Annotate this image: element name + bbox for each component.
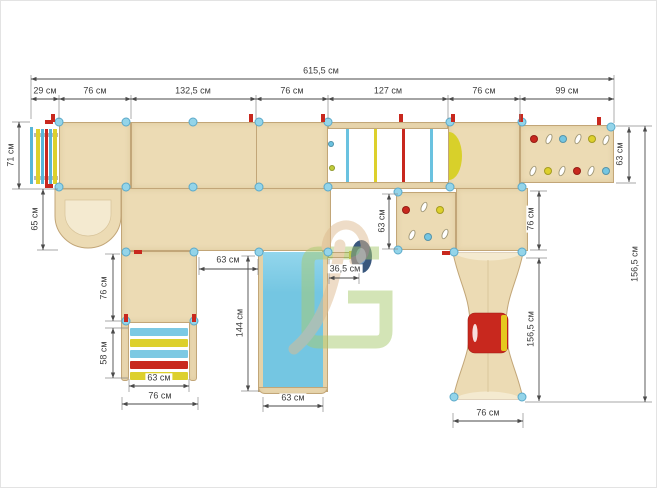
clamp-mark	[399, 114, 403, 122]
dim-right-76: 76 см	[526, 205, 535, 232]
connector-dot	[122, 248, 131, 257]
dim-slide-144: 144 см	[235, 307, 244, 339]
peg-red	[530, 135, 538, 143]
dim-stairs-76: 76 см	[146, 391, 173, 400]
clamp-mark	[442, 251, 450, 255]
dim-slide-63: 63 см	[279, 393, 306, 402]
dim-scope-365: 36,5 см	[328, 264, 363, 273]
dim-seg-29: 29 см	[31, 86, 58, 95]
dim-right-63: 63 см	[615, 140, 624, 167]
bridge-rail-bottom	[328, 182, 448, 189]
slide-surface	[263, 252, 323, 388]
connector-dot	[324, 248, 333, 257]
stair-tower	[121, 251, 197, 323]
peg-red	[573, 167, 581, 175]
dim-seg-127: 127 см	[372, 86, 404, 95]
dim-gap-63: 63 см	[214, 255, 241, 264]
bridge-rail-top	[328, 122, 448, 129]
connector-dot	[55, 183, 64, 192]
dim-seg-99: 99 см	[553, 86, 580, 95]
connector-dot	[122, 183, 131, 192]
dim-left-65: 65 см	[30, 205, 39, 232]
climbing-panel-mid	[396, 192, 456, 250]
connector-dot	[55, 118, 64, 127]
stair-rail-left	[121, 322, 129, 381]
peg-blue	[602, 167, 610, 175]
clamp-mark	[192, 314, 196, 322]
bridge-rung-red	[402, 129, 405, 182]
connector-dot	[122, 118, 131, 127]
left-ladder-module	[29, 123, 59, 188]
connector-dot	[255, 118, 264, 127]
clamp-mark	[321, 114, 325, 122]
platform-top-main	[131, 122, 328, 189]
connector-dot	[255, 248, 264, 257]
connector-dot	[607, 123, 616, 132]
clamp-mark	[451, 114, 455, 122]
connector-dot	[518, 393, 527, 402]
connector-dot	[450, 393, 459, 402]
connector-dot	[450, 248, 459, 257]
bridge-rung-yellow	[374, 129, 377, 182]
connector-dot	[446, 183, 455, 192]
viewer-scope-lens	[356, 248, 366, 264]
clamp-mark	[45, 120, 53, 124]
bridge-rung-blue	[346, 129, 349, 182]
step-red	[130, 361, 188, 369]
dim-mid-63: 63 см	[377, 207, 386, 234]
clamp-mark	[519, 114, 523, 122]
dim-tower-156: 156,5 см	[526, 309, 535, 349]
connector-dot	[255, 183, 264, 192]
bridge-peg-blue	[328, 141, 334, 147]
clamp-mark	[124, 314, 128, 322]
clamp-mark	[134, 250, 142, 254]
connector-dot	[394, 188, 403, 197]
connector-dot	[189, 183, 198, 192]
platform-main-lower	[121, 188, 331, 251]
ladder-rung-blue2	[49, 129, 52, 184]
ladder-rung-red	[45, 129, 48, 184]
platform-right-band	[456, 188, 528, 251]
step-blue	[130, 350, 188, 358]
peg-blue	[424, 233, 432, 241]
ladder-rail-yellow	[36, 129, 40, 184]
peg-red	[402, 206, 410, 214]
dim-seg-76a: 76 см	[81, 86, 108, 95]
dim-left-76: 76 см	[99, 274, 108, 301]
connector-dot	[518, 248, 527, 257]
platform-seam	[256, 123, 257, 188]
clamp-mark	[45, 184, 53, 188]
dim-left-58: 58 см	[99, 339, 108, 366]
connector-dot	[189, 118, 198, 127]
dim-seg-132: 132,5 см	[173, 86, 213, 95]
dim-tower-76: 76 см	[474, 408, 501, 417]
dim-left-71: 71 см	[6, 141, 15, 168]
tower-red-window	[468, 313, 508, 353]
dim-seg-76c: 76 см	[470, 86, 497, 95]
bridge-peg-green	[329, 165, 335, 171]
platform-top-left	[59, 122, 131, 189]
peg-yellow	[436, 206, 444, 214]
peg-blue	[559, 135, 567, 143]
dim-total-width: 615,5 см	[301, 66, 341, 75]
connector-dot	[324, 183, 333, 192]
connector-dot	[394, 246, 403, 255]
step-blue	[130, 328, 188, 336]
clamp-mark	[597, 117, 601, 125]
dim-stairs-63: 63 см	[145, 373, 172, 382]
connector-dot	[518, 183, 527, 192]
stair-rail-right	[189, 322, 197, 381]
connector-dot	[190, 248, 199, 257]
peg-yellow	[588, 135, 596, 143]
dim-seg-76b: 76 см	[278, 86, 305, 95]
ladder-side-pole	[30, 127, 33, 184]
bridge-rung-blue2	[430, 129, 433, 182]
drawing-canvas: 615,5 см 29 см 76 см 132,5 см 76 см 127 …	[0, 0, 657, 488]
ladder-rung-blue	[41, 129, 44, 184]
arch-module	[51, 188, 123, 252]
clamp-mark	[249, 114, 253, 122]
dim-right-total: 156,5 см	[630, 244, 639, 284]
peg-yellow	[544, 167, 552, 175]
curved-tower-module	[446, 246, 536, 406]
step-yellow	[130, 339, 188, 347]
ladder-rail-yellow2	[53, 129, 57, 184]
